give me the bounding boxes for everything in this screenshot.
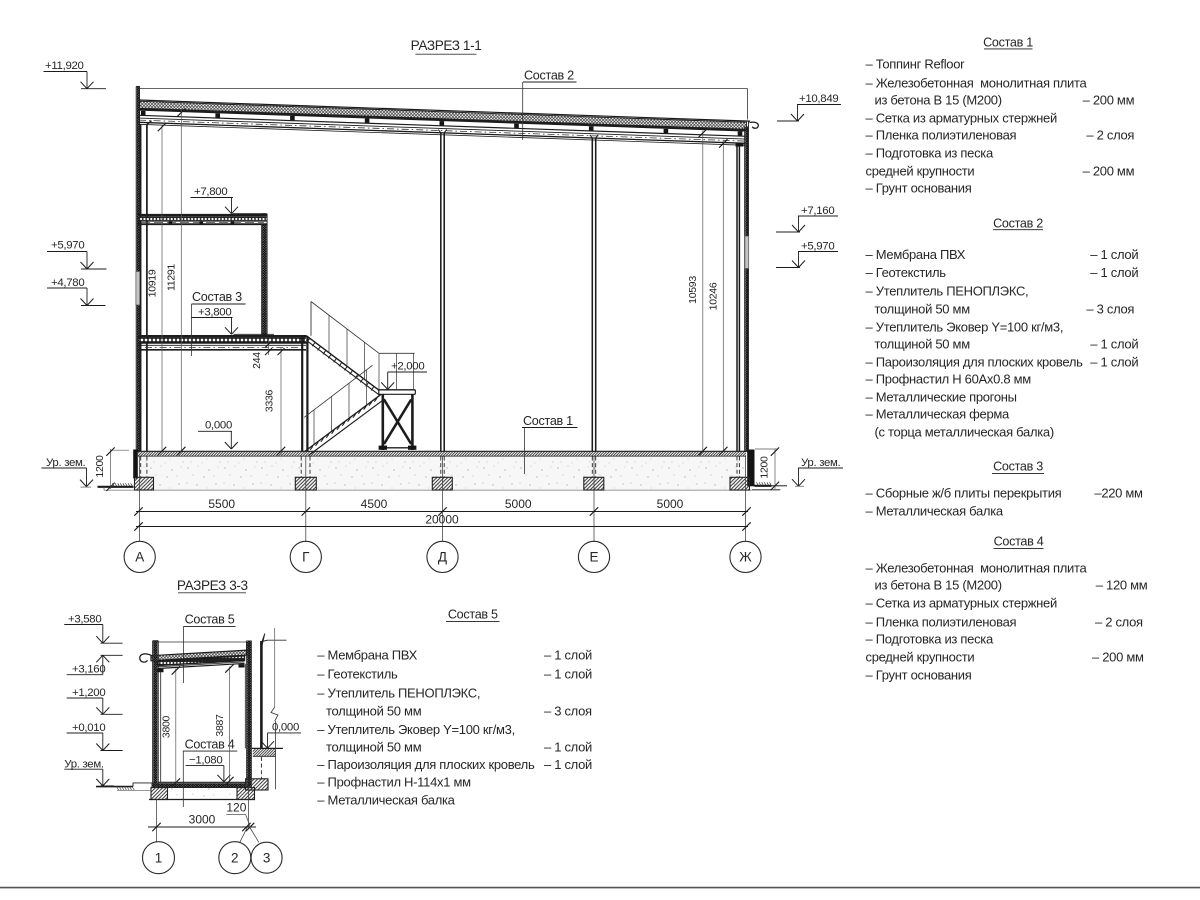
svg-text:– Пароизоляция для плоских кро: – Пароизоляция для плоских кровель: [866, 354, 1084, 369]
svg-text:– Топпинг Refloor: – Топпинг Refloor: [866, 57, 966, 72]
svg-text:+2,000: +2,000: [391, 360, 424, 372]
svg-text:– Мембрана ПВХ: – Мембрана ПВХ: [866, 247, 966, 262]
svg-text:Состав 2: Состав 2: [993, 216, 1043, 230]
svg-text:– 3 слоя: – 3 слоя: [1086, 301, 1134, 316]
svg-text:– 1 слой: – 1 слой: [544, 757, 592, 772]
svg-text:– Пленка полиэтиленовая: – Пленка полиэтиленовая: [866, 128, 1017, 143]
svg-text:толщиной 50 мм: толщиной 50 мм: [875, 301, 971, 316]
svg-text:−1,080: −1,080: [189, 754, 222, 766]
svg-text:244: 244: [251, 352, 263, 369]
svg-text:– 1 слой: – 1 слой: [1090, 336, 1138, 351]
svg-text:– Металлические прогоны: – Металлические прогоны: [866, 389, 1017, 404]
svg-text:20000: 20000: [425, 513, 459, 527]
svg-text:Состав 1: Состав 1: [983, 36, 1033, 50]
svg-text:– Профнастил Н-114х1 мм: – Профнастил Н-114х1 мм: [317, 775, 471, 790]
svg-text:РАЗРЕЗ 3-3: РАЗРЕЗ 3-3: [177, 578, 248, 593]
svg-text:Состав 2: Состав 2: [524, 69, 574, 83]
svg-text:1200: 1200: [759, 456, 771, 479]
svg-text:+1,200: +1,200: [72, 687, 105, 699]
svg-text:– Утеплитель ПЕНОПЛЭКС,: – Утеплитель ПЕНОПЛЭКС,: [866, 283, 1029, 298]
svg-text:– 1 слой: – 1 слой: [544, 667, 592, 682]
svg-text:– Подготовка из песка: – Подготовка из песка: [866, 146, 994, 161]
svg-text:– 1 слой: – 1 слой: [1090, 265, 1138, 280]
svg-text:– 1 слой: – 1 слой: [1090, 247, 1138, 262]
svg-text:– 1 слой: – 1 слой: [1090, 354, 1138, 369]
svg-text:+3,580: +3,580: [68, 613, 101, 625]
svg-text:Состав 4: Состав 4: [994, 535, 1044, 549]
svg-text:средней крупности: средней крупности: [866, 164, 975, 179]
svg-text:3: 3: [263, 850, 271, 865]
svg-text:толщиной 50 мм: толщиной 50 мм: [326, 740, 422, 755]
svg-text:– Утеплитель ПЕНОПЛЭКС,: – Утеплитель ПЕНОПЛЭКС,: [317, 686, 480, 701]
svg-text:Ур. зем.: Ур. зем.: [801, 457, 841, 469]
svg-text:3000: 3000: [189, 812, 216, 826]
svg-text:(с торца металлическая балка): (с торца металлическая балка): [875, 424, 1054, 439]
svg-text:Ж: Ж: [739, 550, 752, 565]
svg-text:+7,160: +7,160: [801, 205, 834, 217]
svg-text:РАЗРЕЗ 1-1: РАЗРЕЗ 1-1: [411, 38, 482, 53]
svg-text:Ур. зем.: Ур. зем.: [64, 758, 104, 770]
svg-text:+11,920: +11,920: [45, 60, 84, 72]
svg-text:10593: 10593: [687, 276, 699, 304]
svg-text:11291: 11291: [166, 264, 178, 291]
svg-text:– 1 слой: – 1 слой: [544, 648, 592, 663]
svg-text:1200: 1200: [94, 455, 106, 478]
svg-text:+0,010: +0,010: [72, 722, 105, 734]
svg-text:0,000: 0,000: [205, 419, 232, 431]
svg-text:Г: Г: [302, 550, 310, 565]
svg-text:1: 1: [155, 850, 163, 865]
svg-text:из бетона В 15 (М200): из бетона В 15 (М200): [875, 578, 1002, 593]
svg-text:5000: 5000: [657, 497, 684, 511]
svg-text:Состав 3: Состав 3: [192, 290, 242, 304]
svg-text:Состав 4: Состав 4: [185, 737, 235, 751]
svg-text:– Сборные ж/б плиты перекрытия: – Сборные ж/б плиты перекрытия: [866, 486, 1062, 501]
svg-text:– Утеплитель Эковер Y=100 кг/м: – Утеплитель Эковер Y=100 кг/м3,: [866, 319, 1064, 334]
svg-text:– 2 слоя: – 2 слоя: [1095, 615, 1143, 630]
svg-text:– Грунт основания: – Грунт основания: [866, 668, 972, 683]
svg-text:Е: Е: [589, 550, 598, 565]
svg-text:– 200 мм: – 200 мм: [1092, 650, 1144, 665]
svg-text:– 200 мм: – 200 мм: [1083, 164, 1135, 179]
svg-text:4500: 4500: [361, 497, 388, 511]
svg-text:Состав 5: Состав 5: [448, 607, 498, 621]
svg-text:+5,970: +5,970: [51, 240, 84, 252]
svg-text:– Железобетонная монолитная п: – Железобетонная монолитная плита: [866, 75, 1088, 90]
svg-text:3336: 3336: [264, 389, 276, 412]
svg-text:средней крупности: средней крупности: [866, 650, 975, 665]
svg-text:+3,800: +3,800: [198, 306, 231, 318]
svg-text:– Мембрана ПВХ: – Мембрана ПВХ: [317, 648, 417, 663]
svg-text:+7,800: +7,800: [194, 186, 227, 198]
svg-text:– 2 слоя: – 2 слоя: [1086, 128, 1134, 143]
svg-text:Ур. зем.: Ур. зем.: [46, 457, 86, 469]
svg-text:– Сетка из арматурных стержней: – Сетка из арматурных стержней: [866, 111, 1057, 126]
svg-text:+5,970: +5,970: [801, 240, 834, 252]
svg-text:0,000: 0,000: [272, 721, 299, 733]
svg-text:– Пароизоляция для плоских кро: – Пароизоляция для плоских кровель: [317, 757, 535, 772]
svg-text:10919: 10919: [147, 269, 159, 297]
svg-text:– Утеплитель Эковер Y=100 кг/м: – Утеплитель Эковер Y=100 кг/м3,: [317, 722, 515, 737]
svg-text:– Сетка из арматурных стержней: – Сетка из арматурных стержней: [866, 596, 1057, 611]
svg-text:– Железобетонная монолитная п: – Железобетонная монолитная плита: [866, 561, 1088, 576]
svg-text:– Пленка полиэтиленовая: – Пленка полиэтиленовая: [866, 615, 1017, 630]
svg-text:из бетона В 15 (М200): из бетона В 15 (М200): [875, 93, 1002, 108]
svg-text:Состав 5: Состав 5: [185, 613, 235, 627]
svg-text:толщиной 50 мм: толщиной 50 мм: [875, 336, 971, 351]
svg-text:– Геотекстиль: – Геотекстиль: [866, 265, 947, 280]
svg-text:5000: 5000: [505, 497, 532, 511]
svg-text:– 120 мм: – 120 мм: [1096, 578, 1148, 593]
svg-text:120: 120: [226, 801, 246, 815]
svg-text:– Геотекстиль: – Геотекстиль: [317, 667, 398, 682]
svg-text:3800: 3800: [160, 715, 172, 738]
svg-text:Д: Д: [438, 550, 447, 565]
svg-text:Состав 3: Состав 3: [993, 460, 1043, 474]
svg-text:толщиной 50 мм: толщиной 50 мм: [326, 704, 422, 719]
svg-text:– 200 мм: – 200 мм: [1083, 93, 1135, 108]
svg-text:10246: 10246: [708, 282, 720, 310]
svg-text:– Металлическая ферма: – Металлическая ферма: [866, 406, 1011, 421]
svg-text:–220 мм: –220 мм: [1094, 486, 1143, 501]
svg-text:– Металлическая балка: – Металлическая балка: [317, 793, 455, 808]
svg-text:– Подготовка из песка: – Подготовка из песка: [866, 632, 994, 647]
svg-text:– Металлическая балка: – Металлическая балка: [866, 504, 1004, 519]
svg-text:+4,780: +4,780: [51, 277, 84, 289]
svg-text:– Профнастил Н 60Ах0.8 мм: – Профнастил Н 60Ах0.8 мм: [866, 371, 1032, 386]
svg-text:+3,160: +3,160: [72, 664, 105, 676]
svg-text:– Грунт основания: – Грунт основания: [866, 181, 972, 196]
svg-text:5500: 5500: [208, 497, 235, 511]
svg-text:3887: 3887: [214, 714, 226, 737]
svg-text:Состав 1: Состав 1: [523, 414, 573, 428]
svg-text:+10,849: +10,849: [799, 93, 838, 105]
svg-text:– 3 слоя: – 3 слоя: [544, 704, 592, 719]
svg-text:2: 2: [231, 850, 239, 865]
svg-text:– 1 слой: – 1 слой: [544, 740, 592, 755]
svg-text:А: А: [135, 550, 144, 565]
